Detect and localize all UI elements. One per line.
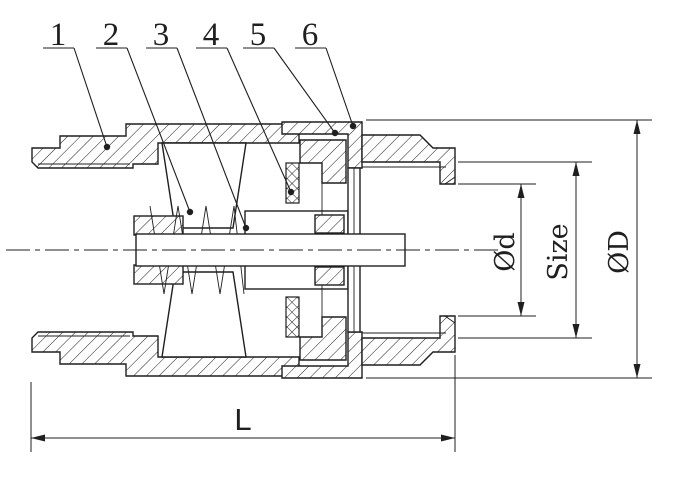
bore-arrow-down	[518, 302, 525, 316]
outlet-flange-bottom-section	[300, 317, 346, 360]
callout-6: 6	[295, 17, 356, 129]
hub-guide-bottom	[315, 267, 344, 285]
outer-diameter-label: ØD	[604, 230, 635, 274]
poppet-bottom-outline	[162, 272, 246, 357]
size-arrow-down	[573, 324, 580, 338]
dimension-bore-diameter: Ød	[458, 184, 536, 316]
od-arrow-up	[634, 120, 641, 134]
size-arrow-up	[573, 162, 580, 176]
length-arrow-right	[441, 435, 455, 442]
length-label: L	[234, 402, 251, 437]
callout-4-dot	[288, 189, 294, 195]
outlet-body-top-section	[362, 135, 455, 184]
callout-3-dot	[243, 225, 249, 231]
port-size-label: Size	[543, 223, 574, 280]
outlet-body-bottom-section	[362, 316, 455, 365]
callout-5-dot	[332, 130, 338, 136]
seal-ring-bottom	[286, 297, 299, 337]
outlet-flange-top-section	[300, 140, 346, 183]
od-arrow-down	[634, 364, 641, 378]
callout-6-leader	[326, 48, 353, 126]
callout-1-leader	[74, 48, 107, 147]
callout-2-dot	[187, 209, 193, 215]
callout-5-leader	[274, 48, 335, 133]
poppet-top-outline	[162, 143, 246, 228]
stem-guide-rib-bottom	[134, 265, 183, 284]
callout-5: 5	[243, 17, 338, 136]
check-valve-drawing: 1 2 3 4 5 6	[0, 0, 680, 485]
seal-ring-top	[286, 163, 299, 203]
bore-arrow-up	[518, 184, 525, 198]
length-arrow-left	[31, 435, 45, 442]
callout-6-dot	[350, 123, 356, 129]
callout-1-dot	[104, 144, 110, 150]
bore-diameter-label: Ød	[490, 232, 521, 271]
hub-guide-top	[315, 215, 344, 233]
technical-drawing-canvas: 1 2 3 4 5 6	[0, 0, 680, 485]
callout-1: 1	[43, 17, 110, 150]
